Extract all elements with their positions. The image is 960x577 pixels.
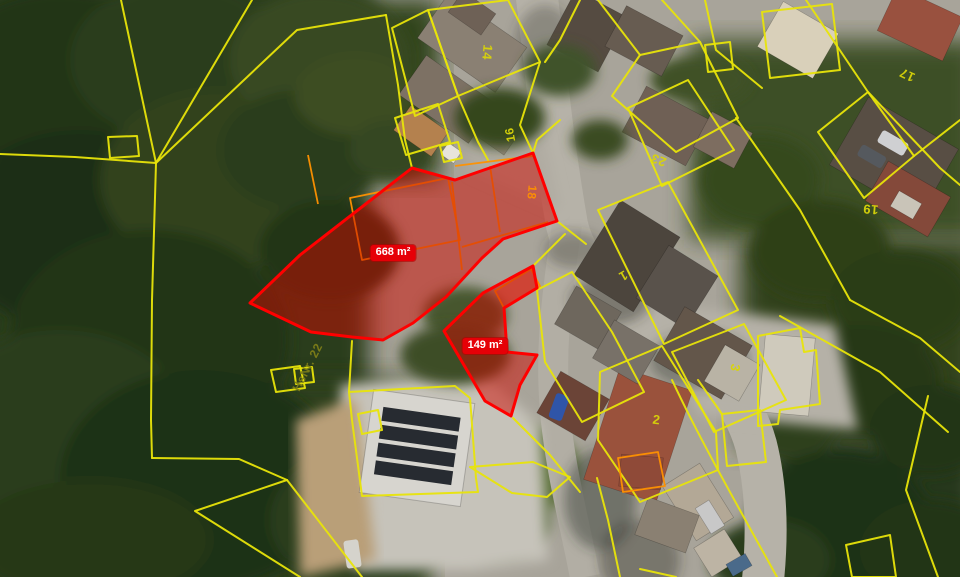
parcel-boundary — [156, 15, 386, 163]
parcel-boundary — [470, 462, 570, 497]
parcel-boundary — [458, 96, 488, 160]
parcel-boundary — [152, 458, 287, 480]
parcel-boundary — [598, 0, 700, 55]
parcel-boundary — [628, 80, 734, 186]
parcel-boundary — [392, 10, 458, 116]
parcel-boundary — [358, 410, 382, 434]
parcel-boundary — [806, 0, 960, 185]
parcel-boundary — [597, 478, 620, 577]
parcel-boundary — [640, 569, 676, 577]
parcel-boundary — [349, 386, 478, 496]
parcel-boundary — [906, 396, 938, 577]
parcel-boundary — [537, 272, 644, 422]
parcel-boundary — [612, 42, 738, 152]
parcel-boundary — [121, 0, 156, 163]
parcel-boundary — [545, 0, 580, 62]
parcel-number-label: 3 — [727, 363, 743, 373]
parcel-boundary — [151, 163, 156, 458]
parcel-boundary — [533, 120, 560, 153]
parcel-boundary — [762, 4, 840, 78]
parcel-boundary — [672, 380, 777, 577]
parcel-boundary — [533, 234, 565, 266]
parcel-boundary — [0, 154, 156, 163]
parcel-number-label: 17 — [897, 65, 917, 85]
parcel-boundary — [513, 418, 580, 492]
parcel-boundary — [705, 42, 733, 72]
parcel-boundary — [195, 480, 300, 577]
parcel-boundary — [850, 300, 960, 372]
parcel-boundary — [846, 535, 896, 577]
parcel-boundary — [598, 182, 738, 344]
parcel-boundary — [287, 480, 362, 577]
parcel-number-label: 23 — [649, 151, 669, 170]
parcel-boundary — [349, 341, 352, 392]
parcel-number-label: 19 — [862, 201, 879, 217]
parcel-boundary — [914, 120, 960, 156]
parcel-boundary — [108, 136, 139, 158]
parcel-boundary — [156, 0, 252, 163]
parcel-number-label: 16 — [502, 126, 518, 143]
parcel-boundary-lines — [0, 0, 960, 577]
parcel-boundary — [818, 92, 914, 198]
parcel-number-label: 2 — [652, 412, 662, 428]
parcel-number-label: 18 — [524, 185, 539, 201]
building-outline — [308, 155, 318, 204]
selected-parcel-149[interactable] — [444, 266, 537, 416]
parcel-boundary — [736, 118, 850, 300]
parcel-boundary — [557, 221, 586, 244]
selected-parcel-668[interactable] — [250, 153, 557, 340]
cadastral-overlay: 141618231719132HsNr. 22 — [0, 0, 960, 577]
parcel-boundary — [758, 328, 820, 426]
building-outline — [618, 452, 665, 492]
map-viewport[interactable]: 141618231719132HsNr. 22 668 m²149 m² — [0, 0, 960, 577]
parcel-number-label: 14 — [479, 44, 495, 61]
parcel-boundary — [440, 142, 462, 162]
